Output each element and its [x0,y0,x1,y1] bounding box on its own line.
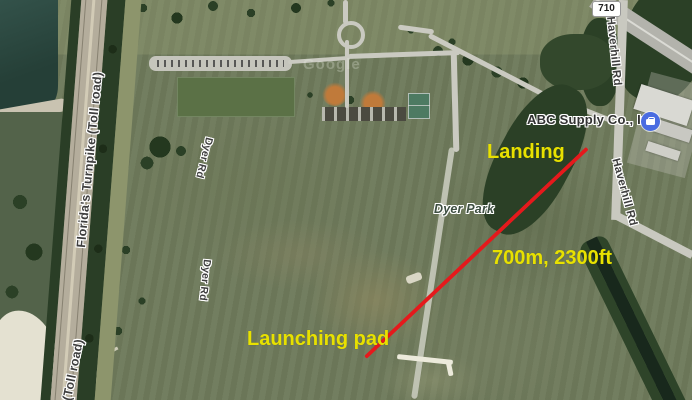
parking-lot [149,56,292,71]
bleachers-buildings [322,107,406,121]
google-watermark: Google [303,56,361,73]
park-entrance-road [343,0,348,24]
sports-field [177,77,295,117]
briefcase-icon[interactable] [641,112,660,131]
map-canvas[interactable]: Florida's Turnpike (Toll road) (Toll roa… [0,0,692,400]
park-road [345,40,349,108]
forest [540,34,614,90]
distance-annotation: 700m, 2300ft [492,247,612,270]
launching-pad-annotation: Launching pad [247,328,389,351]
route-710-shield: 710 [592,1,621,17]
briefcase-body [646,119,655,125]
landing-annotation: Landing [487,141,565,164]
dyer-park-label: Dyer Park [434,202,494,216]
tennis-courts [408,93,430,119]
poi-label: ABC Supply Co., Inc [527,112,656,127]
roundabout [337,21,365,49]
